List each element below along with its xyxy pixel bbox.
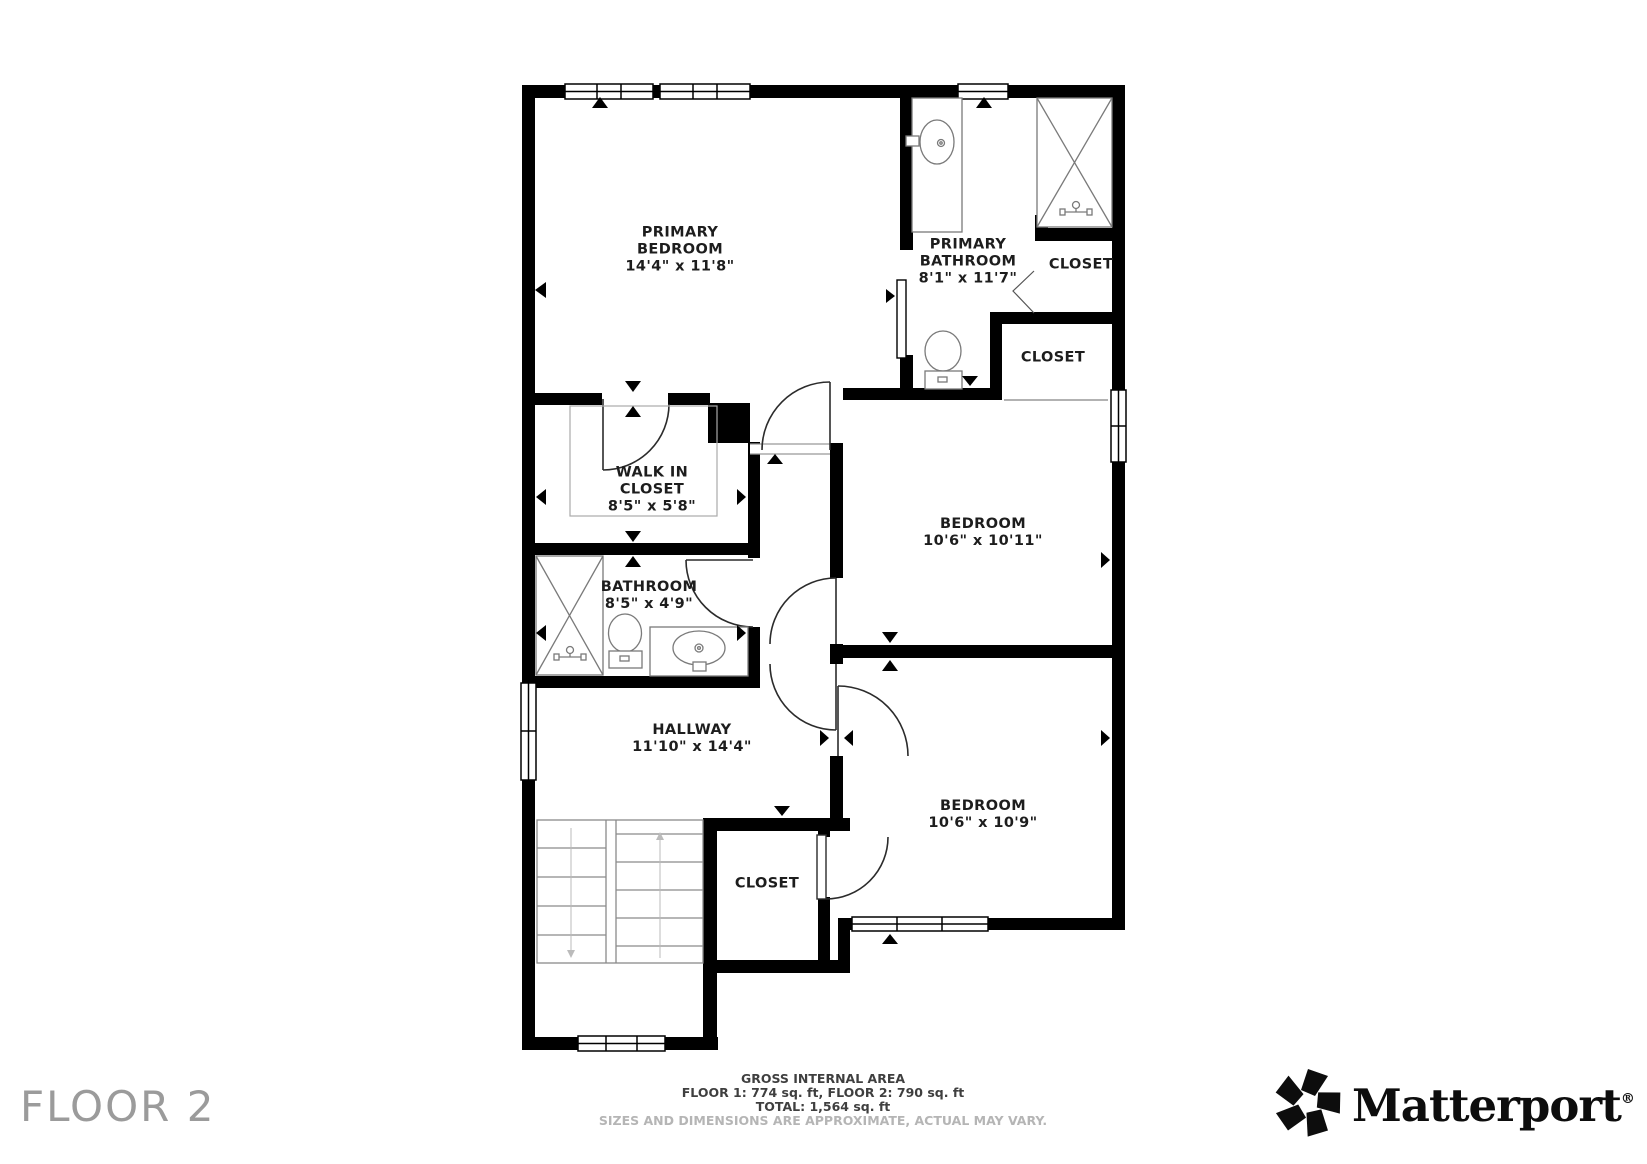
window-top-bedroom-left bbox=[565, 84, 653, 99]
room-label-closet-top-right: CLOSET bbox=[1049, 257, 1113, 274]
window-left-hallway bbox=[521, 683, 536, 780]
window-bottom-bedroom2 bbox=[852, 917, 988, 931]
door-bedroom1 bbox=[770, 578, 836, 644]
shower-closet-top-right-icon bbox=[1037, 98, 1112, 227]
footer-line-floors: FLOOR 1: 774 sq. ft, FLOOR 2: 790 sq. ft bbox=[599, 1086, 1047, 1100]
footer-line-title: GROSS INTERNAL AREA bbox=[599, 1072, 1047, 1086]
floor-plan-page: PRIMARY BEDROOM 14'4" x 11'8" PRIMARY BA… bbox=[0, 0, 1647, 1164]
door-bedroom2-hall bbox=[770, 664, 836, 730]
room-label-bathroom: BATHROOM 8'5" x 4'9" bbox=[601, 579, 698, 613]
footer-disclaimer: SIZES AND DIMENSIONS ARE APPROXIMATE, AC… bbox=[599, 1114, 1047, 1128]
door-primary-bedroom bbox=[762, 382, 830, 450]
registered-mark: ® bbox=[1621, 1091, 1634, 1107]
window-bottom-stairwell bbox=[578, 1036, 665, 1051]
matterport-wordmark: Matterport® bbox=[1352, 1069, 1634, 1136]
floor-label: FLOOR 2 bbox=[20, 1082, 215, 1131]
window-right-bedroom1 bbox=[1111, 390, 1126, 462]
gross-internal-area-block: GROSS INTERNAL AREA FLOOR 1: 774 sq. ft,… bbox=[599, 1072, 1047, 1128]
pocket-door-primary-bathroom bbox=[897, 280, 906, 358]
sink-vanity-primary-bathroom-icon bbox=[906, 98, 962, 232]
room-label-bedroom-1: BEDROOM 10'6" x 10'11" bbox=[923, 516, 1043, 550]
door-closet-bottom bbox=[817, 835, 888, 899]
room-label-closet-mid-right: CLOSET bbox=[1021, 350, 1085, 367]
room-label-primary-bedroom: PRIMARY BEDROOM 14'4" x 11'8" bbox=[625, 225, 734, 276]
door-bedroom2-inner bbox=[838, 686, 908, 756]
shower-bathroom-icon bbox=[536, 556, 603, 675]
floor-plan-drawing bbox=[0, 0, 1647, 1164]
room-label-walk-in-closet: WALK IN CLOSET 8'5" x 5'8" bbox=[608, 465, 696, 516]
toilet-primary-bathroom-icon bbox=[925, 331, 962, 389]
room-label-hallway: HALLWAY 11'10" x 14'4" bbox=[632, 722, 752, 756]
door-thresholds bbox=[750, 400, 1108, 454]
matterport-icon-spacer bbox=[1270, 1064, 1342, 1136]
toilet-bathroom-icon bbox=[609, 614, 643, 668]
room-label-bedroom-2: BEDROOM 10'6" x 10'9" bbox=[928, 798, 1037, 832]
window-top-bedroom-right bbox=[660, 84, 750, 99]
door-walk-in-closet bbox=[603, 399, 669, 470]
walls bbox=[522, 85, 1125, 1050]
sink-vanity-bathroom-icon bbox=[650, 627, 748, 676]
matterport-logo: Matterport® bbox=[1270, 1064, 1634, 1136]
room-label-primary-bathroom: PRIMARY BATHROOM 8'1" x 11'7" bbox=[919, 237, 1018, 288]
stairs-icon bbox=[537, 820, 703, 963]
footer-line-total: TOTAL: 1,564 sq. ft bbox=[599, 1100, 1047, 1114]
window-top-bathroom bbox=[958, 84, 1008, 99]
room-label-closet-bottom: CLOSET bbox=[735, 876, 799, 893]
